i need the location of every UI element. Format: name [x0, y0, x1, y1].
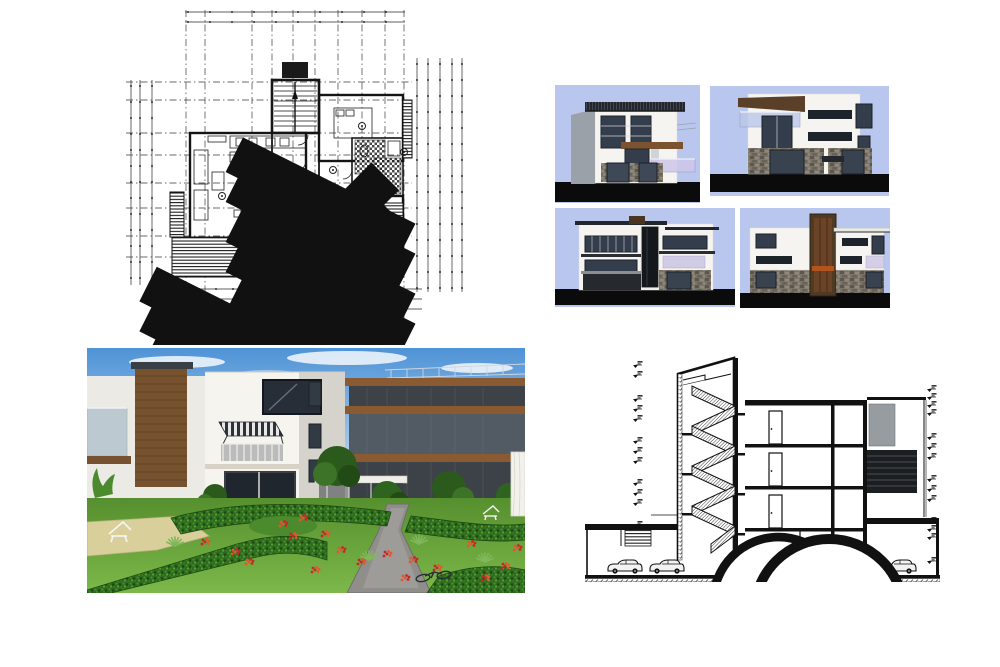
floor-plan-panel: [112, 0, 470, 345]
render-1-image: [555, 85, 700, 203]
photo-render-panel: [87, 348, 525, 593]
courtyard-render-image: [87, 348, 525, 593]
stair-flights: [692, 386, 735, 553]
garden: [87, 498, 525, 593]
floor-slabs: [745, 402, 867, 532]
section-panel: [585, 347, 940, 582]
architecture-presentation-board: [0, 0, 1000, 667]
plan-stair-core: [272, 62, 319, 133]
section-drawing: [585, 347, 940, 582]
render-4-panel: [740, 208, 890, 308]
render-2-image: [710, 86, 889, 196]
section-doors: [769, 411, 782, 528]
render-1-panel: [555, 85, 700, 203]
render-3-image: [555, 208, 735, 307]
render-2-panel: [710, 86, 889, 196]
render-3-panel: [555, 208, 735, 307]
cabana-curtain: [511, 452, 525, 516]
floor-plan-drawing: [112, 0, 470, 345]
render-4-image: [740, 208, 890, 308]
